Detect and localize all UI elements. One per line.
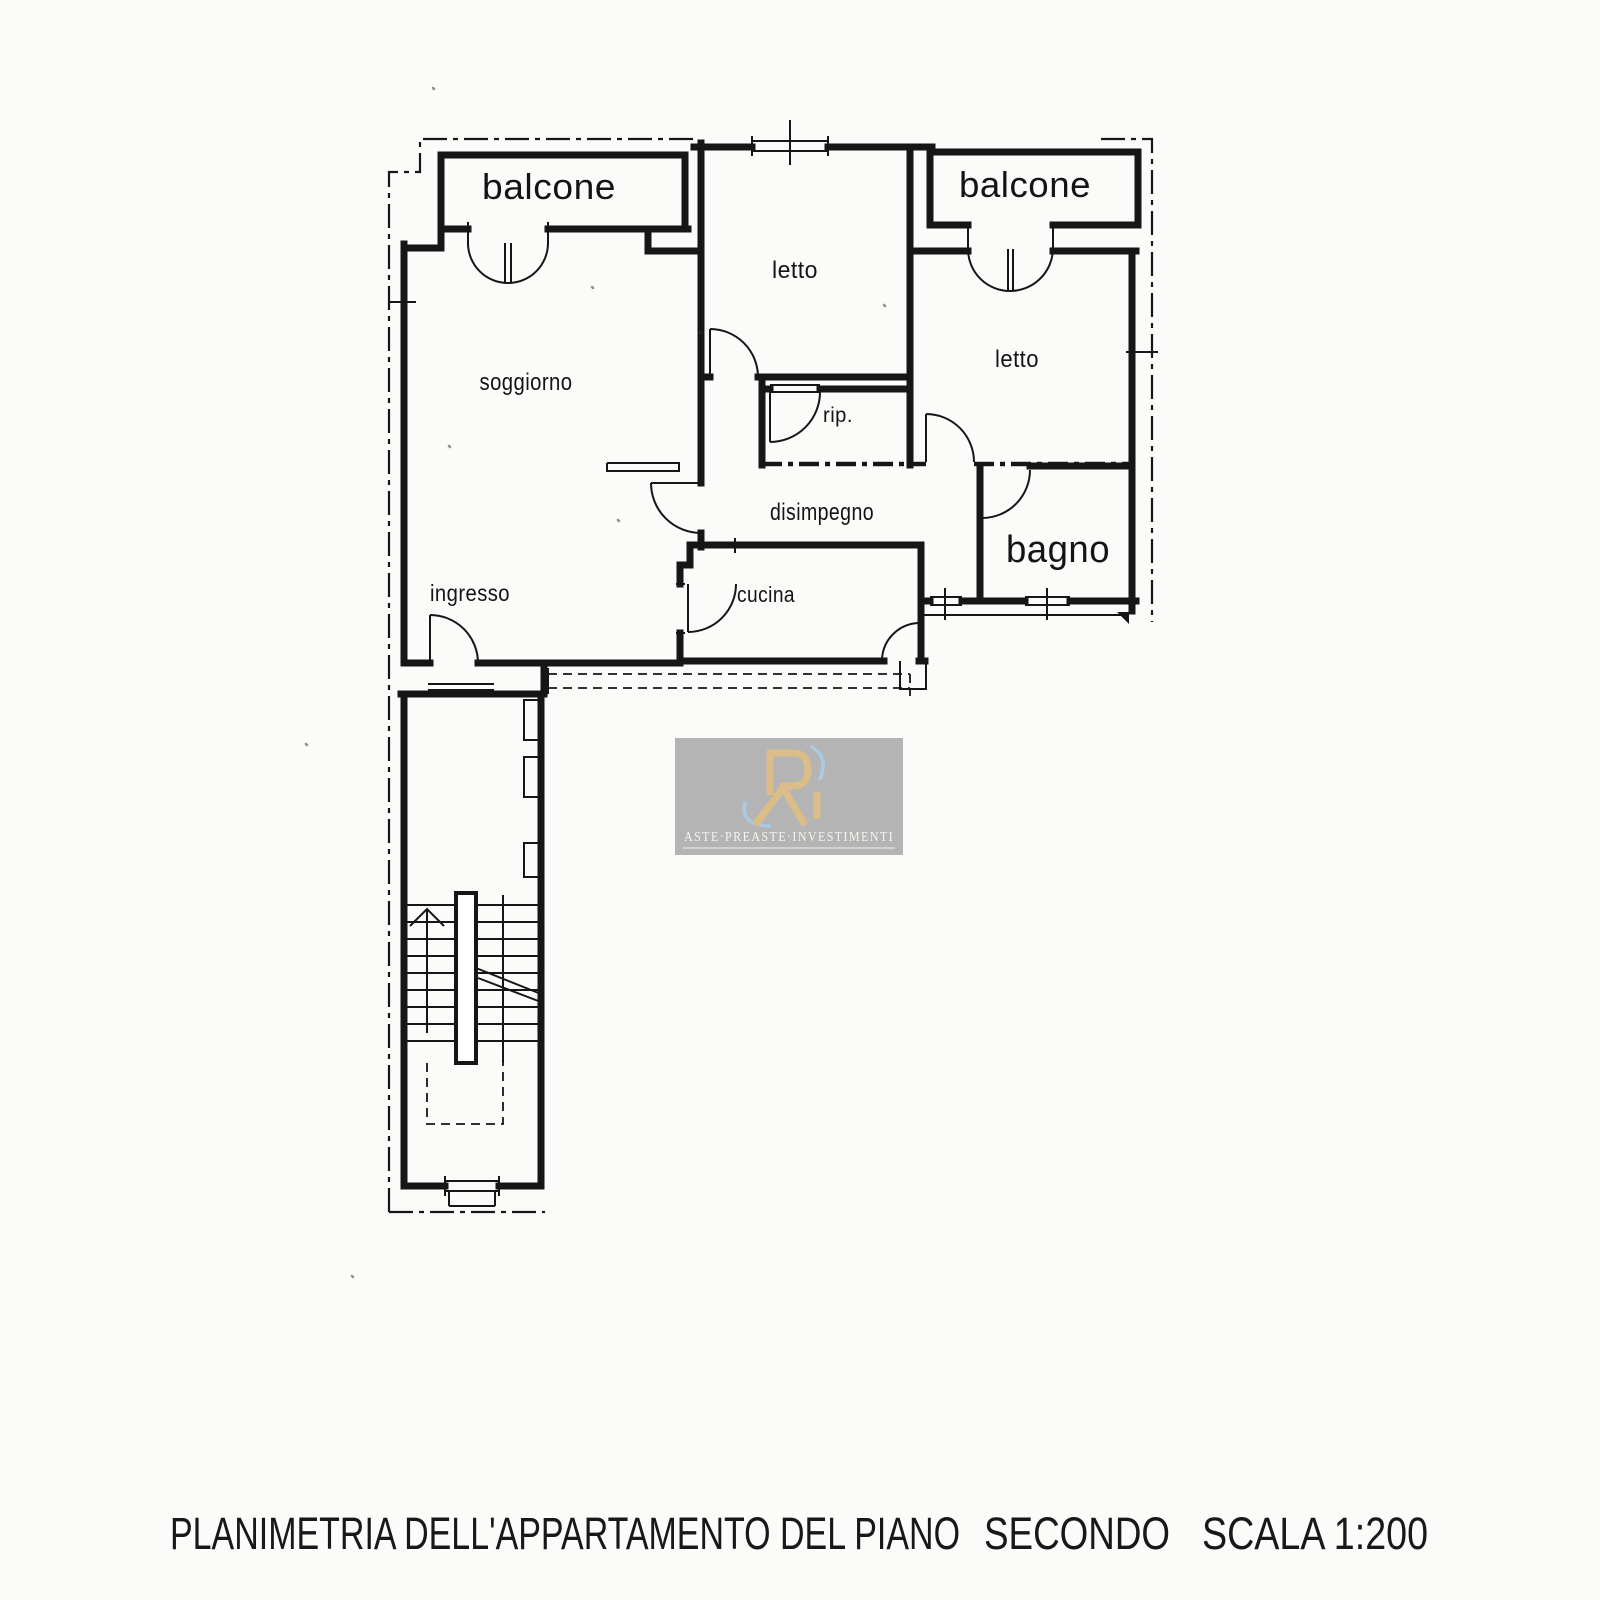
- room-label-balcone-right: balcone: [959, 164, 1091, 205]
- stair-newel: [456, 893, 476, 1063]
- watermark: ASTE·PREASTE·INVESTIMENTI: [675, 738, 903, 855]
- room-label-letto-right: letto: [995, 346, 1039, 373]
- room-label-soggiorno: soggiorno: [480, 369, 573, 396]
- stair-dashed-landing: [427, 1063, 503, 1124]
- landing-dashed-lines: [548, 674, 910, 696]
- room-label-ripostiglio: rip.: [823, 404, 853, 427]
- room-label-cucina: cucina: [737, 582, 795, 607]
- scanned-floorplan-page: balcone balcone letto letto soggiorno ri…: [0, 0, 1600, 1600]
- walls: [401, 143, 1138, 1186]
- room-label-ingresso: ingresso: [430, 580, 510, 606]
- exterior-and-partition-walls: [401, 143, 1138, 1186]
- caption: PLANIMETRIA DELL'APPARTAMENTO DEL PIANO …: [170, 1508, 1428, 1559]
- room-label-letto-middle: letto: [772, 257, 818, 284]
- caption-title: PLANIMETRIA DELL'APPARTAMENTO DEL PIANO: [170, 1508, 960, 1559]
- floorplan-drawing: balcone balcone letto letto soggiorno ri…: [0, 0, 1600, 1600]
- room-label-disimpegno: disimpegno: [770, 499, 874, 526]
- room-label-balcone-left: balcone: [482, 166, 616, 207]
- watermark-brand-text: ASTE·PREASTE·INVESTIMENTI: [684, 830, 894, 845]
- caption-scale: SCALA 1:200: [1202, 1508, 1428, 1559]
- sill-corner-foot: [1117, 612, 1129, 624]
- caption-floor: SECONDO: [984, 1508, 1170, 1559]
- staircase: [406, 893, 541, 1124]
- room-label-bagno: bagno: [1006, 529, 1110, 571]
